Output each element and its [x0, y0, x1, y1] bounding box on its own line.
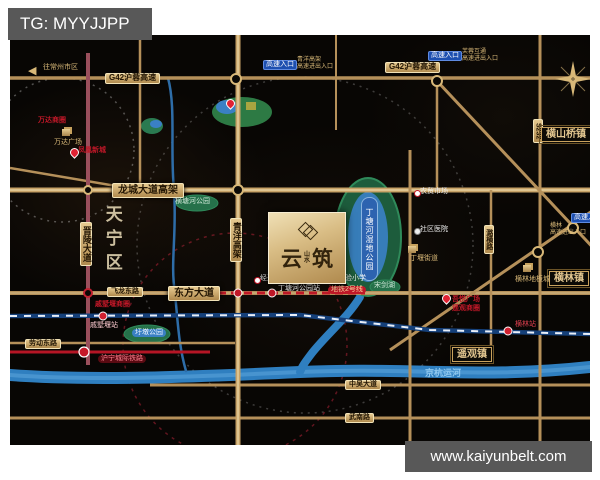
highway-entrance-note: 横林 高速进出入口 — [550, 223, 586, 237]
poi-label: 沪宁城际铁路 — [98, 355, 146, 363]
poi-dot-icon — [414, 228, 421, 235]
project-logo-icon — [300, 224, 314, 238]
road-label: G42沪蓉高速 — [385, 62, 440, 73]
highway-entrance-note: 芙蓉互通 高速进出入口 — [462, 49, 498, 63]
highway-entrance-badge: 高速入口 — [428, 51, 462, 61]
poi-dot-icon — [414, 190, 421, 197]
project-marker: 云 山 水 筑 — [268, 212, 346, 284]
poi-dot-icon — [254, 277, 261, 284]
poi-label: 戚墅堰站 — [90, 322, 118, 330]
poi-label: 丁堰街道 — [410, 255, 438, 263]
building-icon — [62, 129, 70, 136]
poi-label: 圩墩公园 — [132, 329, 166, 337]
road-label: G42沪蓉高速 — [105, 73, 160, 84]
tg-watermark: TG: MYYJJPP — [8, 8, 152, 40]
project-name-left: 云 — [281, 243, 302, 273]
town-label: 横林镇 — [549, 271, 589, 286]
road-label: 武南路 — [345, 413, 374, 423]
commercial-area-label: 遥观商圈 — [452, 305, 480, 313]
website-watermark: www.kaiyunbelt.com — [405, 441, 592, 472]
commercial-area-label: 戚墅堰商圈 — [95, 301, 130, 309]
poi-label: 丁塘河公园站 — [278, 285, 320, 293]
road-label: 飞龙东路 — [107, 287, 143, 297]
project-name: 云 山 水 筑 — [281, 243, 333, 273]
highway-entrance-badge: 高速入口 — [263, 60, 297, 70]
poi-label: 宋剑湖 — [374, 282, 395, 290]
poi-label: 京杭运河 — [425, 369, 461, 379]
commercial-area-label: 万达商圈 — [38, 117, 66, 125]
location-map: 云 山 水 筑 丁塘河湿地公园 G42沪蓉高速G42沪蓉高速龙城大道高架东方大道… — [10, 35, 590, 445]
commercial-area-label: 凤凰新城 — [78, 147, 106, 155]
poi-label: 万达广场 — [54, 139, 82, 147]
poi-label: 地铁2号线 — [328, 286, 366, 294]
poi-label: 横林地板城 — [515, 276, 550, 284]
road-label: 潞横路 — [484, 225, 494, 254]
poi-label: 横林站 — [515, 321, 536, 329]
road-label: 中吴大道 — [345, 380, 381, 390]
road-label: 龙城大道高架 — [112, 183, 184, 198]
railway-line — [10, 315, 590, 352]
project-name-small: 山 水 — [304, 252, 310, 264]
highway-entrance-note: 青洋高架 高速进出入口 — [297, 57, 333, 71]
poi-label: 往常州市区 — [43, 64, 78, 72]
town-label: 遥观镇 — [452, 347, 492, 362]
poi-label: 农贸市场 — [420, 188, 448, 196]
building-icon — [408, 246, 416, 253]
district-label: 天宁区 — [102, 205, 121, 277]
town-label: 横山桥镇 — [541, 127, 590, 142]
parks — [124, 97, 401, 343]
wetland-park-label: 丁塘河湿地公园 — [361, 197, 378, 281]
commercial-area-label: 吾悦广场 — [452, 296, 480, 304]
road-label: 青洋高架 — [230, 218, 242, 262]
road-label: 晋陵大道 — [80, 222, 92, 266]
highway-entrance-badge: 高速入口 — [571, 213, 590, 223]
poi-label: 横塘河公园 — [175, 198, 210, 206]
building-icon — [523, 265, 531, 272]
project-name-right: 筑 — [312, 243, 333, 273]
road-label: 劳动东路 — [25, 339, 61, 349]
road-label: 东方大道 — [168, 286, 220, 301]
west-arrow-icon: ◀ — [28, 66, 36, 77]
poi-label: 社区医院 — [420, 226, 448, 234]
compass-icon — [555, 61, 590, 97]
